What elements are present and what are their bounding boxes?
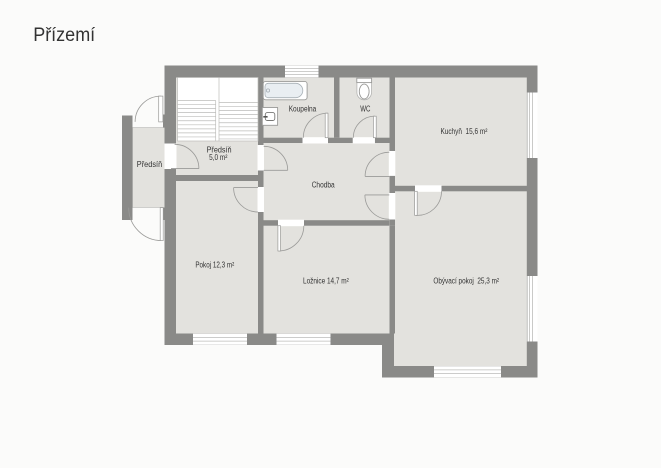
- svg-text:Předsíň: Předsíň: [137, 160, 162, 169]
- svg-text:Přízemí: Přízemí: [33, 25, 96, 46]
- svg-text:Koupelna: Koupelna: [289, 105, 317, 114]
- svg-text:Chodba: Chodba: [312, 180, 335, 189]
- svg-text:5,0 m²: 5,0 m²: [209, 153, 228, 162]
- svg-text:Pokoj 12,3 m²: Pokoj 12,3 m²: [195, 261, 234, 270]
- svg-text:Kuchyň 15,6 m²: Kuchyň 15,6 m²: [440, 127, 487, 136]
- svg-text:WC: WC: [360, 105, 370, 114]
- svg-text:Obývací pokoj 25,3 m²: Obývací pokoj 25,3 m²: [433, 276, 499, 285]
- svg-text:Ložnice 14,7 m²: Ložnice 14,7 m²: [303, 277, 349, 286]
